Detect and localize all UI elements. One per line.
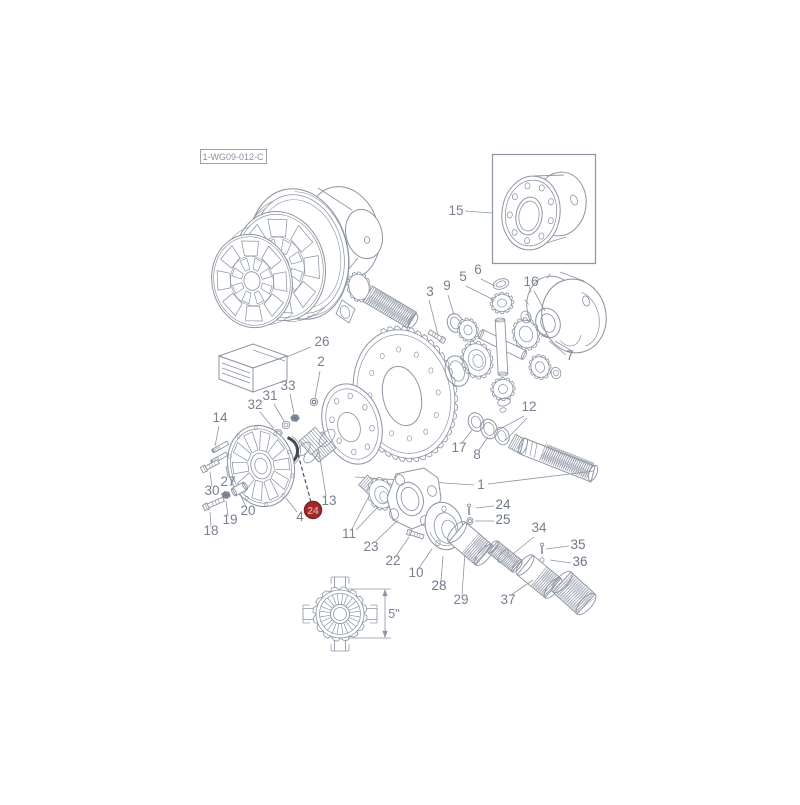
svg-text:29: 29 <box>453 592 468 607</box>
svg-text:6: 6 <box>474 262 482 277</box>
svg-text:22: 22 <box>385 553 400 568</box>
svg-text:24: 24 <box>495 497 511 512</box>
svg-text:20: 20 <box>240 503 255 518</box>
svg-text:37: 37 <box>500 592 515 607</box>
svg-text:10: 10 <box>408 565 423 580</box>
svg-text:32: 32 <box>247 397 262 412</box>
svg-text:2: 2 <box>317 354 325 369</box>
svg-text:26: 26 <box>314 334 329 349</box>
svg-text:17: 17 <box>451 440 466 455</box>
svg-text:19: 19 <box>222 512 237 527</box>
svg-text:14: 14 <box>212 410 228 425</box>
svg-text:35: 35 <box>570 537 585 552</box>
svg-text:12: 12 <box>521 399 536 414</box>
svg-text:5: 5 <box>459 269 467 284</box>
svg-text:16: 16 <box>523 274 538 289</box>
svg-text:24: 24 <box>307 506 319 517</box>
svg-text:5": 5" <box>388 607 399 621</box>
svg-text:3: 3 <box>426 284 434 299</box>
svg-text:9: 9 <box>443 278 451 293</box>
svg-text:33: 33 <box>280 378 295 393</box>
svg-text:11: 11 <box>342 526 356 541</box>
svg-text:25: 25 <box>495 512 510 527</box>
svg-text:1: 1 <box>477 477 485 492</box>
svg-text:31: 31 <box>262 388 277 403</box>
svg-text:15: 15 <box>448 203 463 218</box>
svg-text:7: 7 <box>566 348 574 363</box>
svg-text:34: 34 <box>531 520 547 535</box>
svg-text:1-WG09-012-C: 1-WG09-012-C <box>202 152 264 162</box>
svg-text:4: 4 <box>296 509 304 524</box>
svg-text:28: 28 <box>431 578 446 593</box>
svg-text:13: 13 <box>321 493 336 508</box>
svg-text:36: 36 <box>572 554 587 569</box>
